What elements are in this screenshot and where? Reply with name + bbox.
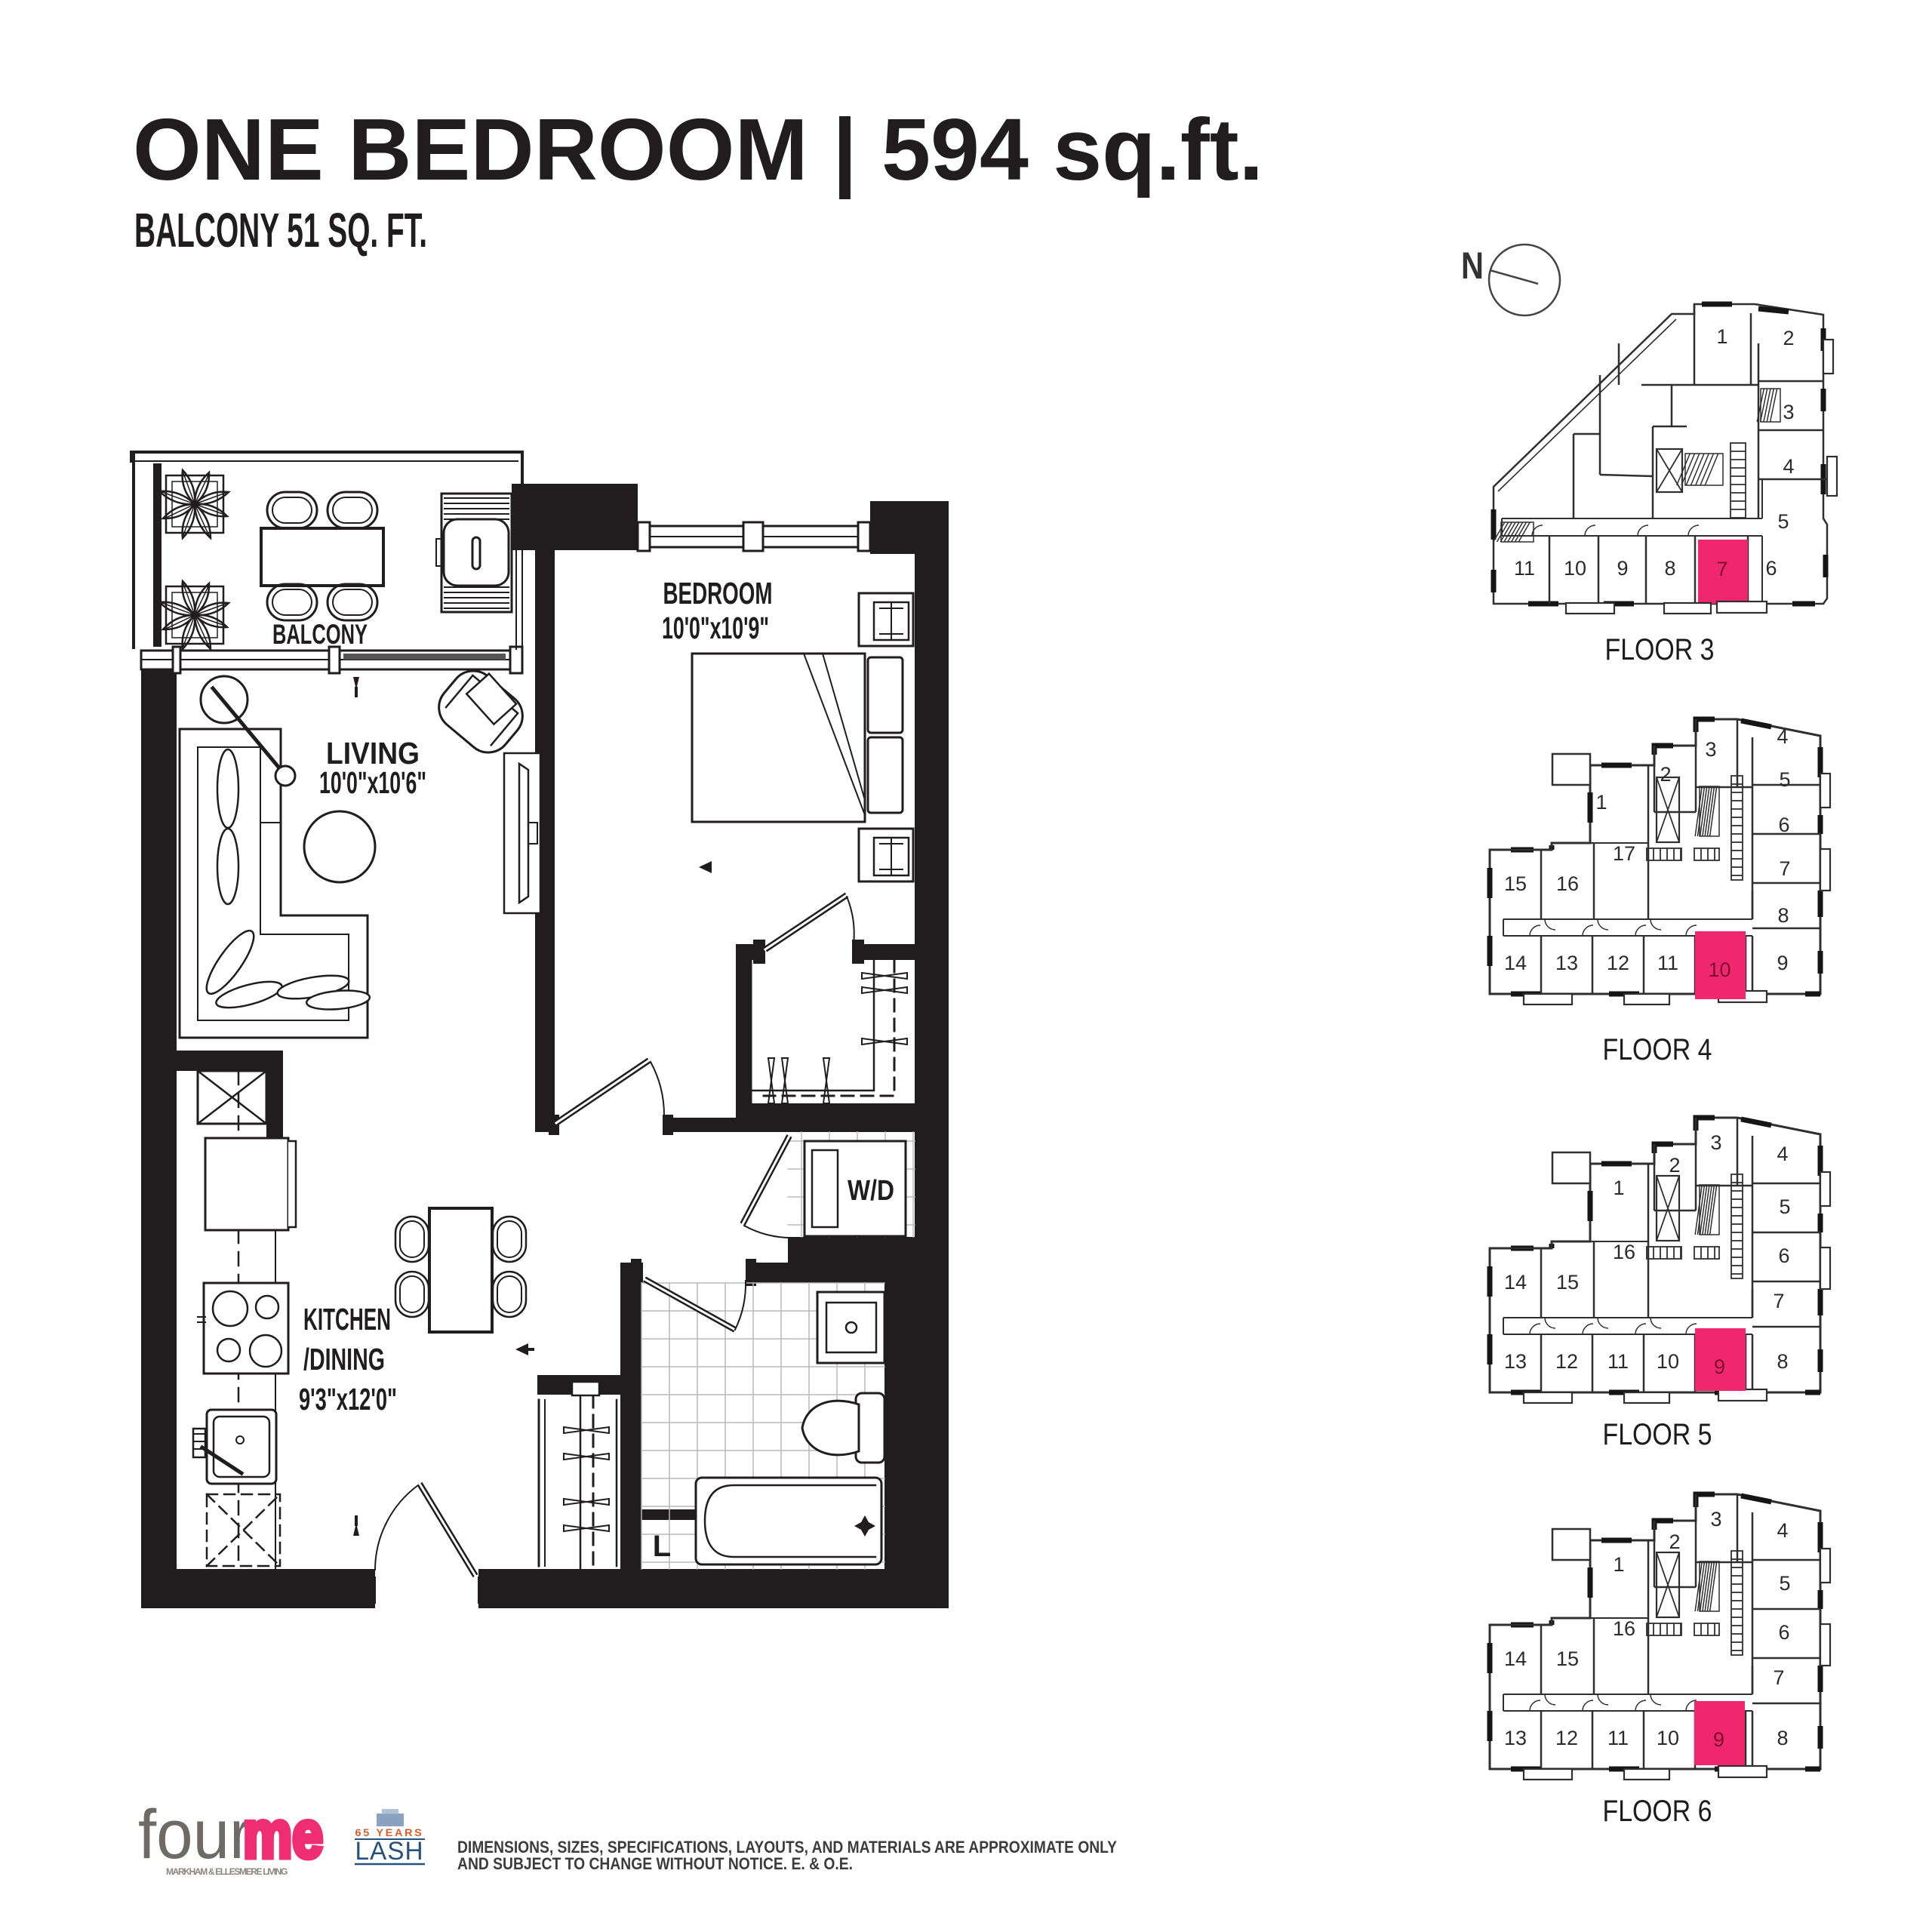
svg-text:5: 5 xyxy=(1779,768,1790,791)
svg-text:14: 14 xyxy=(1504,1271,1527,1294)
svg-text:4: 4 xyxy=(1777,1143,1788,1165)
svg-text:four: four xyxy=(138,1796,251,1873)
svg-text:13: 13 xyxy=(1504,1727,1527,1749)
svg-text:7: 7 xyxy=(1779,857,1790,880)
svg-text:13: 13 xyxy=(1504,1350,1527,1373)
svg-text:2: 2 xyxy=(1669,1154,1680,1177)
svg-text:17: 17 xyxy=(1613,842,1635,865)
svg-text:9: 9 xyxy=(1713,1728,1724,1751)
svg-text:L: L xyxy=(653,1530,671,1563)
svg-text:15: 15 xyxy=(1504,872,1527,895)
svg-text:12: 12 xyxy=(1607,952,1629,974)
svg-text:4: 4 xyxy=(1777,725,1788,748)
svg-text:11: 11 xyxy=(1514,557,1535,580)
svg-text:me: me xyxy=(243,1797,323,1872)
svg-text:2: 2 xyxy=(1669,1531,1680,1553)
svg-text:14: 14 xyxy=(1504,1647,1527,1670)
svg-text:10'0"x10'6": 10'0"x10'6" xyxy=(319,765,426,800)
svg-text:12: 12 xyxy=(1555,1350,1578,1373)
svg-text:14: 14 xyxy=(1504,952,1527,974)
svg-text:9: 9 xyxy=(1714,1355,1725,1378)
svg-text:7: 7 xyxy=(1716,558,1727,580)
svg-text:FLOOR 4: FLOOR 4 xyxy=(1603,1033,1712,1066)
svg-text:BALCONY: BALCONY xyxy=(272,619,368,650)
svg-text:AND SUBJECT TO CHANGE WITHOUT: AND SUBJECT TO CHANGE WITHOUT NOTICE. E.… xyxy=(457,1854,853,1873)
svg-text:12: 12 xyxy=(1555,1727,1578,1749)
svg-text:8: 8 xyxy=(1777,904,1789,927)
svg-text:FLOOR 5: FLOOR 5 xyxy=(1603,1418,1712,1451)
svg-text:W/D: W/D xyxy=(848,1175,894,1207)
svg-text:1: 1 xyxy=(1716,325,1727,348)
svg-text:4: 4 xyxy=(1783,455,1794,478)
svg-text:6: 6 xyxy=(1778,1621,1789,1644)
svg-text:15: 15 xyxy=(1556,1647,1579,1670)
svg-text:16: 16 xyxy=(1613,1617,1635,1640)
svg-text:4: 4 xyxy=(1777,1519,1788,1542)
svg-text:N: N xyxy=(1461,245,1484,287)
svg-text:3: 3 xyxy=(1710,1508,1721,1531)
svg-text:5: 5 xyxy=(1777,510,1789,533)
svg-text:2: 2 xyxy=(1660,763,1671,786)
svg-text:11: 11 xyxy=(1607,1350,1629,1373)
svg-text:10: 10 xyxy=(1657,1350,1679,1373)
svg-text:6: 6 xyxy=(1778,814,1789,836)
svg-text:KITCHEN: KITCHEN xyxy=(303,1302,391,1337)
svg-text:6: 6 xyxy=(1765,557,1777,580)
svg-text:1: 1 xyxy=(1595,791,1607,814)
svg-text:5: 5 xyxy=(1779,1572,1790,1595)
svg-text:BALCONY 51 SQ. FT.: BALCONY 51 SQ. FT. xyxy=(134,203,427,257)
svg-text:2: 2 xyxy=(1783,327,1794,349)
svg-text:FLOOR 3: FLOOR 3 xyxy=(1605,633,1715,666)
svg-text:1: 1 xyxy=(1613,1553,1624,1576)
svg-text:13: 13 xyxy=(1555,952,1578,974)
svg-text:3: 3 xyxy=(1783,401,1794,423)
svg-text:3: 3 xyxy=(1705,738,1716,761)
svg-text:9: 9 xyxy=(1617,557,1628,580)
svg-text:9'3"x12'0": 9'3"x12'0" xyxy=(299,1382,397,1417)
svg-text:FLOOR 6: FLOOR 6 xyxy=(1603,1795,1712,1828)
svg-text:MARKHAM & ELLESMERE LIVING: MARKHAM & ELLESMERE LIVING xyxy=(166,1866,289,1877)
svg-text:/DINING: /DINING xyxy=(303,1342,385,1377)
svg-text:6: 6 xyxy=(1778,1244,1789,1267)
svg-text:7: 7 xyxy=(1773,1666,1784,1689)
svg-text:7: 7 xyxy=(1773,1290,1784,1312)
svg-text:5: 5 xyxy=(1779,1195,1790,1218)
svg-text:16: 16 xyxy=(1613,1241,1635,1263)
svg-text:3: 3 xyxy=(1710,1131,1721,1154)
svg-text:ONE BEDROOM | 594 sq.ft.: ONE BEDROOM | 594 sq.ft. xyxy=(133,100,1263,199)
svg-text:8: 8 xyxy=(1777,1350,1788,1373)
svg-text:9: 9 xyxy=(1777,952,1788,974)
svg-text:10: 10 xyxy=(1708,958,1730,981)
svg-text:16: 16 xyxy=(1556,872,1579,895)
svg-text:LASH: LASH xyxy=(355,1837,424,1866)
svg-text:8: 8 xyxy=(1777,1727,1788,1749)
svg-text:10: 10 xyxy=(1657,1727,1679,1749)
svg-text:10: 10 xyxy=(1564,557,1586,580)
svg-text:11: 11 xyxy=(1607,1727,1629,1749)
svg-text:8: 8 xyxy=(1664,557,1675,580)
svg-text:10'0"x10'9": 10'0"x10'9" xyxy=(662,611,769,645)
svg-text:1: 1 xyxy=(1613,1177,1624,1199)
svg-text:11: 11 xyxy=(1657,952,1678,974)
svg-text:BEDROOM: BEDROOM xyxy=(663,576,773,611)
svg-text:15: 15 xyxy=(1556,1271,1579,1294)
